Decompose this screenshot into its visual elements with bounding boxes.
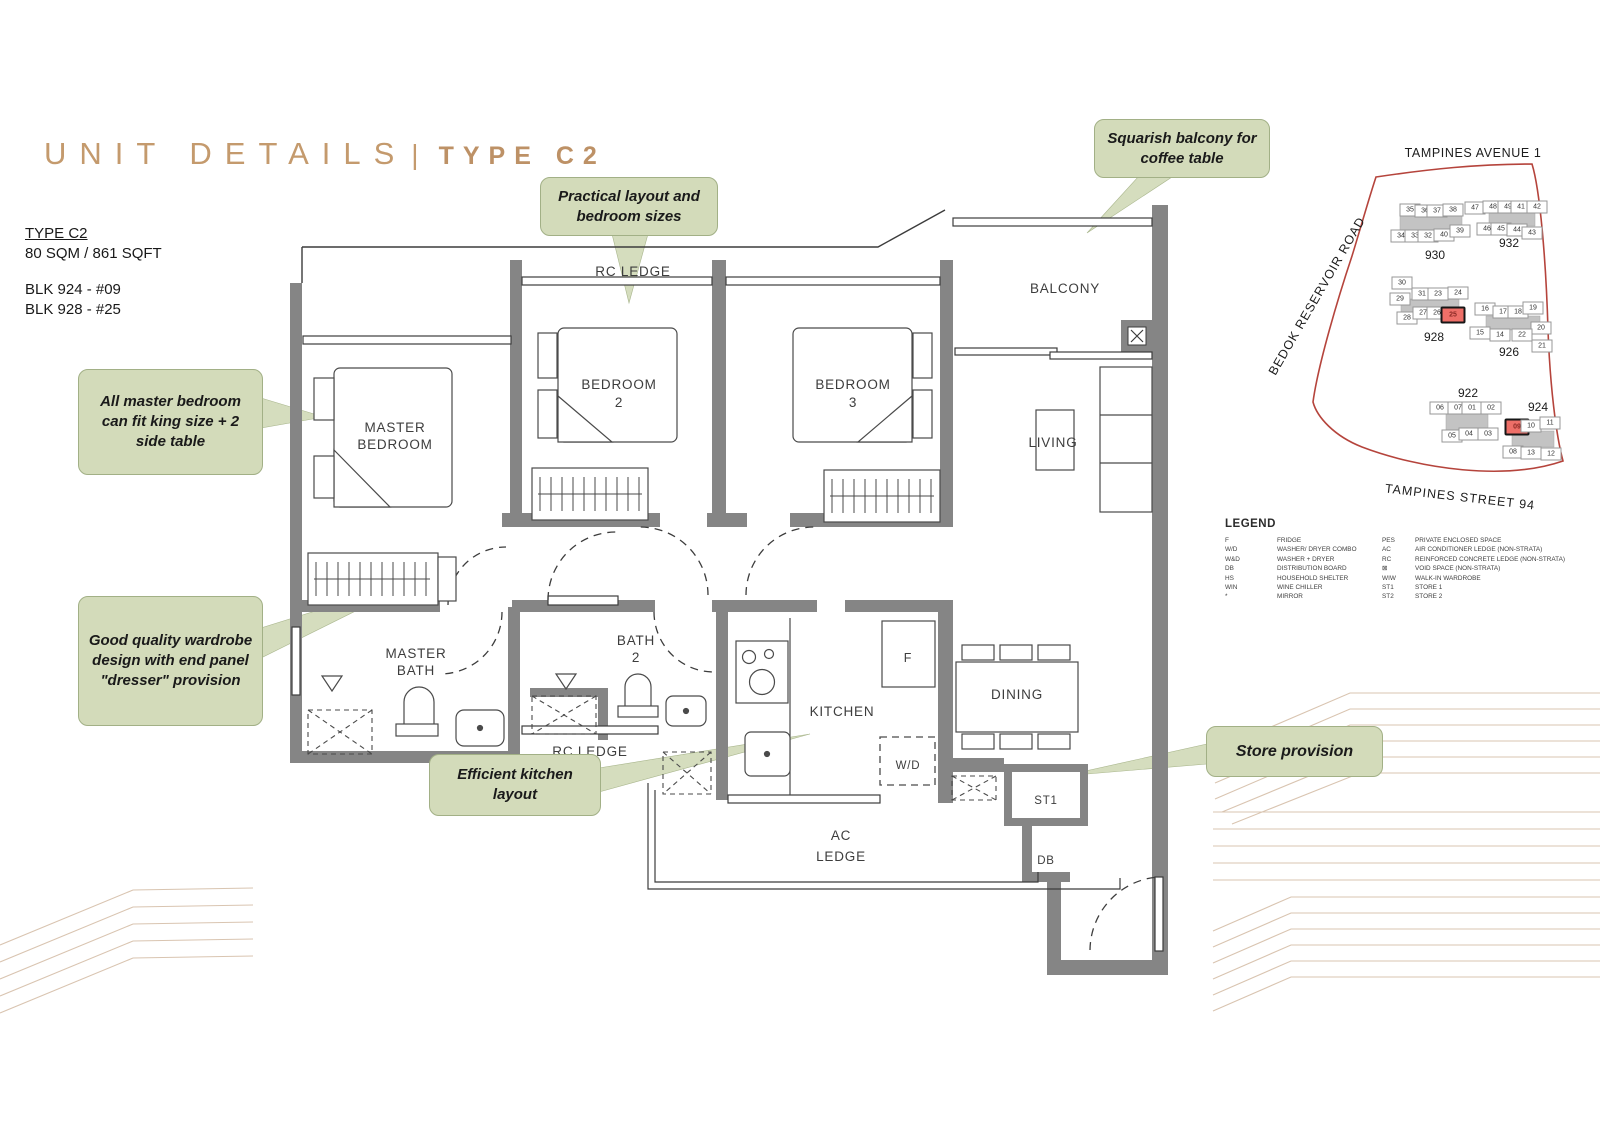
callout-master: All master bedroom can fit king size + 2…: [78, 369, 263, 475]
unit-block-1: BLK 924 - #09: [25, 280, 162, 300]
callout-kitchen-text: Efficient kitchen layout: [439, 765, 591, 805]
legend-abbr: WIN: [1225, 583, 1277, 592]
legend-abbr: W&D: [1225, 555, 1277, 564]
callout-practical-text: Practical layout and bedroom sizes: [550, 187, 708, 227]
legend-row: ST1STORE 1: [1382, 583, 1565, 592]
legend-title: LEGEND: [1225, 518, 1565, 530]
callout-kitchen: Efficient kitchen layout: [429, 754, 601, 816]
label-master-bath-2: BATH: [397, 663, 435, 678]
page-title: UNIT DETAILS | TYPE C2: [44, 136, 606, 172]
label-fridge: F: [904, 651, 912, 665]
label-dining: DINING: [991, 687, 1043, 702]
label-washer: W/D: [896, 760, 921, 772]
callout-master-text: All master bedroom can fit king size + 2…: [88, 392, 253, 451]
legend-row: PESPRIVATE ENCLOSED SPACE: [1382, 536, 1565, 545]
site-building-cores: [1400, 212, 1554, 447]
page: RC LEDGE MASTER BEDROOM BEDROOM 2 BEDROO…: [0, 0, 1600, 1132]
legend-abbr: ST2: [1382, 592, 1415, 601]
callout-balcony-text: Squarish balcony for coffee table: [1104, 129, 1260, 169]
callout-wardrobe: Good quality wardrobe design with end pa…: [78, 596, 263, 726]
legend-desc: FRIDGE: [1277, 536, 1301, 545]
title-left: UNIT DETAILS: [44, 136, 407, 172]
legend-abbr: DB: [1225, 564, 1277, 573]
label-bedroom2: BEDROOM: [581, 377, 656, 392]
title-divider: |: [411, 139, 418, 171]
label-bedroom2-num: 2: [615, 395, 623, 410]
legend-abbr: *: [1225, 592, 1277, 601]
unit-type: TYPE C2: [25, 224, 162, 244]
label-master-bedroom: MASTER: [364, 420, 425, 435]
legend-abbr: ST1: [1382, 583, 1415, 592]
legend-row: ST2STORE 2: [1382, 592, 1565, 601]
legend-desc: STORE 1: [1415, 583, 1442, 592]
legend-row: HSHOUSEHOLD SHELTER: [1225, 574, 1382, 583]
label-master-bath: MASTER: [385, 646, 446, 661]
legend-abbr: RC: [1382, 555, 1415, 564]
label-living: LIVING: [1028, 435, 1077, 450]
legend-desc: DISTRIBUTION BOARD: [1277, 564, 1347, 573]
legend-abbr: ⊠: [1382, 564, 1415, 573]
label-balcony: BALCONY: [1030, 281, 1100, 296]
label-bath2-num: 2: [632, 650, 640, 665]
legend-row: W&DWASHER + DRYER: [1225, 555, 1382, 564]
unit-area: 80 SQM / 861 SQFT: [25, 244, 162, 264]
legend-abbr: HS: [1225, 574, 1277, 583]
legend-abbr: W/D: [1225, 545, 1277, 554]
callout-store-text: Store provision: [1236, 741, 1353, 762]
label-db: DB: [1037, 855, 1055, 867]
legend-desc: HOUSEHOLD SHELTER: [1277, 574, 1348, 583]
legend: LEGEND FFRIDGEW/DWASHER/ DRYER COMBOW&DW…: [1225, 518, 1565, 602]
site-map: [1313, 164, 1563, 471]
legend-desc: REINFORCED CONCRETE LEDGE (NON-STRATA): [1415, 555, 1565, 564]
legend-col-right: PESPRIVATE ENCLOSED SPACEACAIR CONDITION…: [1382, 536, 1565, 602]
plan-furniture: [308, 328, 1152, 795]
legend-desc: STORE 2: [1415, 592, 1442, 601]
label-bath2: BATH: [617, 633, 655, 648]
legend-row: W/DWASHER/ DRYER COMBO: [1225, 545, 1382, 554]
legend-abbr: WIW: [1382, 574, 1415, 583]
label-bedroom3: BEDROOM: [815, 377, 890, 392]
balcony-void-icon: [1128, 327, 1146, 345]
label-ac-ledge-2: LEDGE: [816, 849, 866, 864]
callout-balcony: Squarish balcony for coffee table: [1094, 119, 1270, 178]
legend-desc: WALK-IN WARDROBE: [1415, 574, 1481, 583]
legend-row: WIWWALK-IN WARDROBE: [1382, 574, 1565, 583]
label-bedroom3-num: 3: [849, 395, 857, 410]
legend-desc: WASHER + DRYER: [1277, 555, 1334, 564]
label-ac-ledge: AC: [831, 828, 851, 843]
legend-abbr: F: [1225, 536, 1277, 545]
legend-col-left: FFRIDGEW/DWASHER/ DRYER COMBOW&DWASHER +…: [1225, 536, 1382, 602]
decor-lines-left: [0, 888, 253, 1013]
legend-row: *MIRROR: [1225, 592, 1382, 601]
legend-row: ⊠VOID SPACE (NON-STRATA): [1382, 564, 1565, 573]
title-right: TYPE C2: [439, 142, 606, 171]
legend-desc: VOID SPACE (NON-STRATA): [1415, 564, 1500, 573]
label-store1: ST1: [1034, 795, 1058, 807]
legend-desc: AIR CONDITIONER LEDGE (NON-STRATA): [1415, 545, 1542, 554]
legend-row: FFRIDGE: [1225, 536, 1382, 545]
callout-store: Store provision: [1206, 726, 1383, 777]
legend-desc: WASHER/ DRYER COMBO: [1277, 545, 1357, 554]
unit-block-2: BLK 928 - #25: [25, 300, 162, 320]
legend-abbr: AC: [1382, 545, 1415, 554]
legend-row: WINWINE CHILLER: [1225, 583, 1382, 592]
legend-row: ACAIR CONDITIONER LEDGE (NON-STRATA): [1382, 545, 1565, 554]
legend-desc: PRIVATE ENCLOSED SPACE: [1415, 536, 1501, 545]
label-rc-ledge-top: RC LEDGE: [595, 264, 670, 279]
callout-practical: Practical layout and bedroom sizes: [540, 177, 718, 236]
label-master-bedroom-2: BEDROOM: [357, 437, 432, 452]
unit-info: TYPE C2 80 SQM / 861 SQFT BLK 924 - #09 …: [25, 224, 162, 320]
legend-desc: WINE CHILLER: [1277, 583, 1322, 592]
legend-row: RCREINFORCED CONCRETE LEDGE (NON-STRATA): [1382, 555, 1565, 564]
road-label-tampines-ave1: TAMPINES AVENUE 1: [1405, 146, 1542, 160]
legend-desc: MIRROR: [1277, 592, 1303, 601]
callout-wardrobe-text: Good quality wardrobe design with end pa…: [88, 631, 253, 690]
legend-abbr: PES: [1382, 536, 1415, 545]
legend-row: DBDISTRIBUTION BOARD: [1225, 564, 1382, 573]
label-kitchen: KITCHEN: [810, 704, 875, 719]
